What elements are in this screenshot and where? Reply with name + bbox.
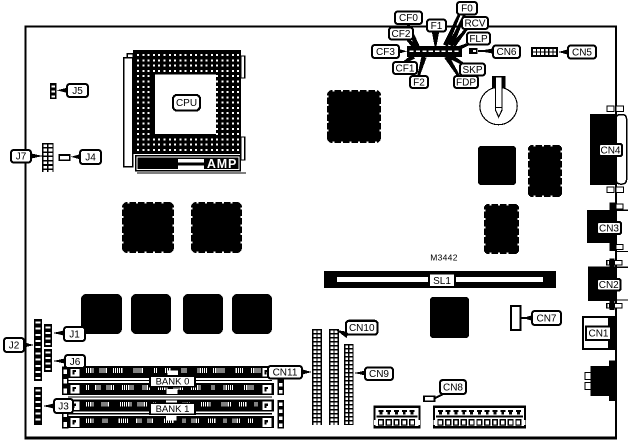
svg-text:CPU: CPU — [176, 98, 197, 109]
svg-text:CN1: CN1 — [588, 329, 608, 340]
svg-text:RCV: RCV — [464, 18, 485, 29]
svg-text:FLP: FLP — [469, 34, 488, 45]
svg-text:BANK 1: BANK 1 — [156, 404, 190, 415]
svg-text:FDP: FDP — [456, 77, 476, 88]
svg-text:AMP: AMP — [207, 157, 237, 171]
svg-text:CN2: CN2 — [599, 280, 619, 291]
svg-text:CN9: CN9 — [369, 369, 389, 380]
svg-text:F2: F2 — [413, 77, 425, 88]
svg-text:CN4: CN4 — [600, 145, 620, 156]
svg-text:J5: J5 — [72, 86, 83, 97]
svg-text:J6: J6 — [70, 357, 81, 368]
svg-text:CN10: CN10 — [349, 323, 375, 334]
svg-text:CN5: CN5 — [572, 47, 592, 58]
svg-text:F0: F0 — [461, 4, 473, 15]
svg-text:J3: J3 — [58, 401, 69, 412]
svg-text:CF1: CF1 — [396, 63, 415, 74]
svg-text:CN11: CN11 — [273, 368, 298, 379]
svg-text:BANK 0: BANK 0 — [156, 377, 190, 388]
svg-text:J4: J4 — [85, 152, 96, 163]
svg-text:SKP: SKP — [462, 65, 482, 76]
svg-text:SL1: SL1 — [433, 276, 451, 287]
svg-text:CN6: CN6 — [496, 47, 516, 58]
svg-text:CN7: CN7 — [536, 313, 556, 324]
svg-text:CF0: CF0 — [399, 13, 418, 24]
svg-text:J1: J1 — [69, 329, 80, 340]
svg-text:CN8: CN8 — [443, 382, 463, 393]
svg-text:F1: F1 — [431, 21, 443, 32]
svg-text:CF3: CF3 — [376, 47, 395, 58]
svg-text:CN3: CN3 — [599, 223, 619, 234]
svg-text:J2: J2 — [9, 340, 20, 351]
svg-text:M3442: M3442 — [430, 253, 458, 263]
svg-text:CF2: CF2 — [392, 29, 411, 40]
svg-text:J7: J7 — [16, 152, 27, 163]
